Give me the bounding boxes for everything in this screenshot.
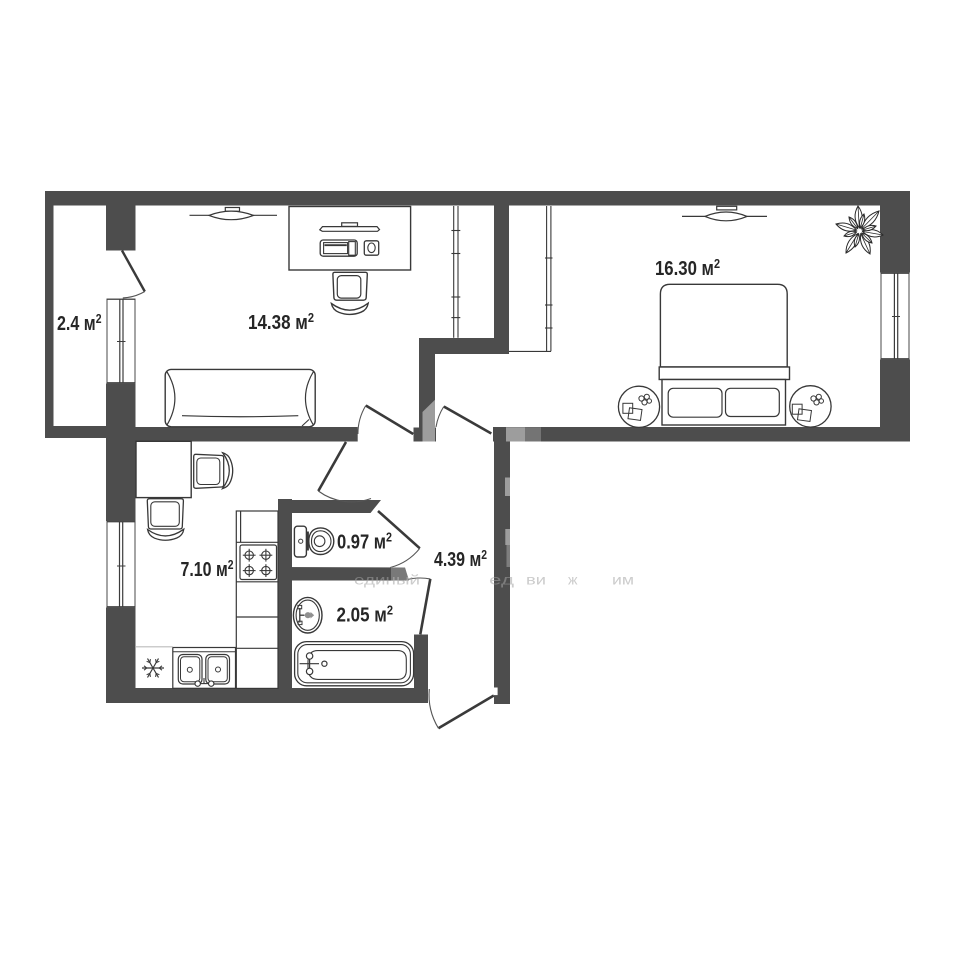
svg-text:16.30 м2: 16.30 м2 <box>655 256 720 280</box>
svg-text:ви: ви <box>526 573 546 589</box>
svg-text:ж: ж <box>568 573 578 589</box>
svg-text:7.10 м2: 7.10 м2 <box>181 557 234 581</box>
svg-text:0.97 м2: 0.97 м2 <box>337 530 392 554</box>
svg-text:единый: единый <box>354 573 420 589</box>
svg-text:14.38 м2: 14.38 м2 <box>248 310 314 334</box>
svg-text:им: им <box>612 573 634 589</box>
svg-text:ед: ед <box>489 573 515 589</box>
svg-text:2.05 м2: 2.05 м2 <box>337 603 394 627</box>
svg-text:2.4 м2: 2.4 м2 <box>57 311 102 335</box>
svg-text:4.39 м2: 4.39 м2 <box>434 547 487 571</box>
